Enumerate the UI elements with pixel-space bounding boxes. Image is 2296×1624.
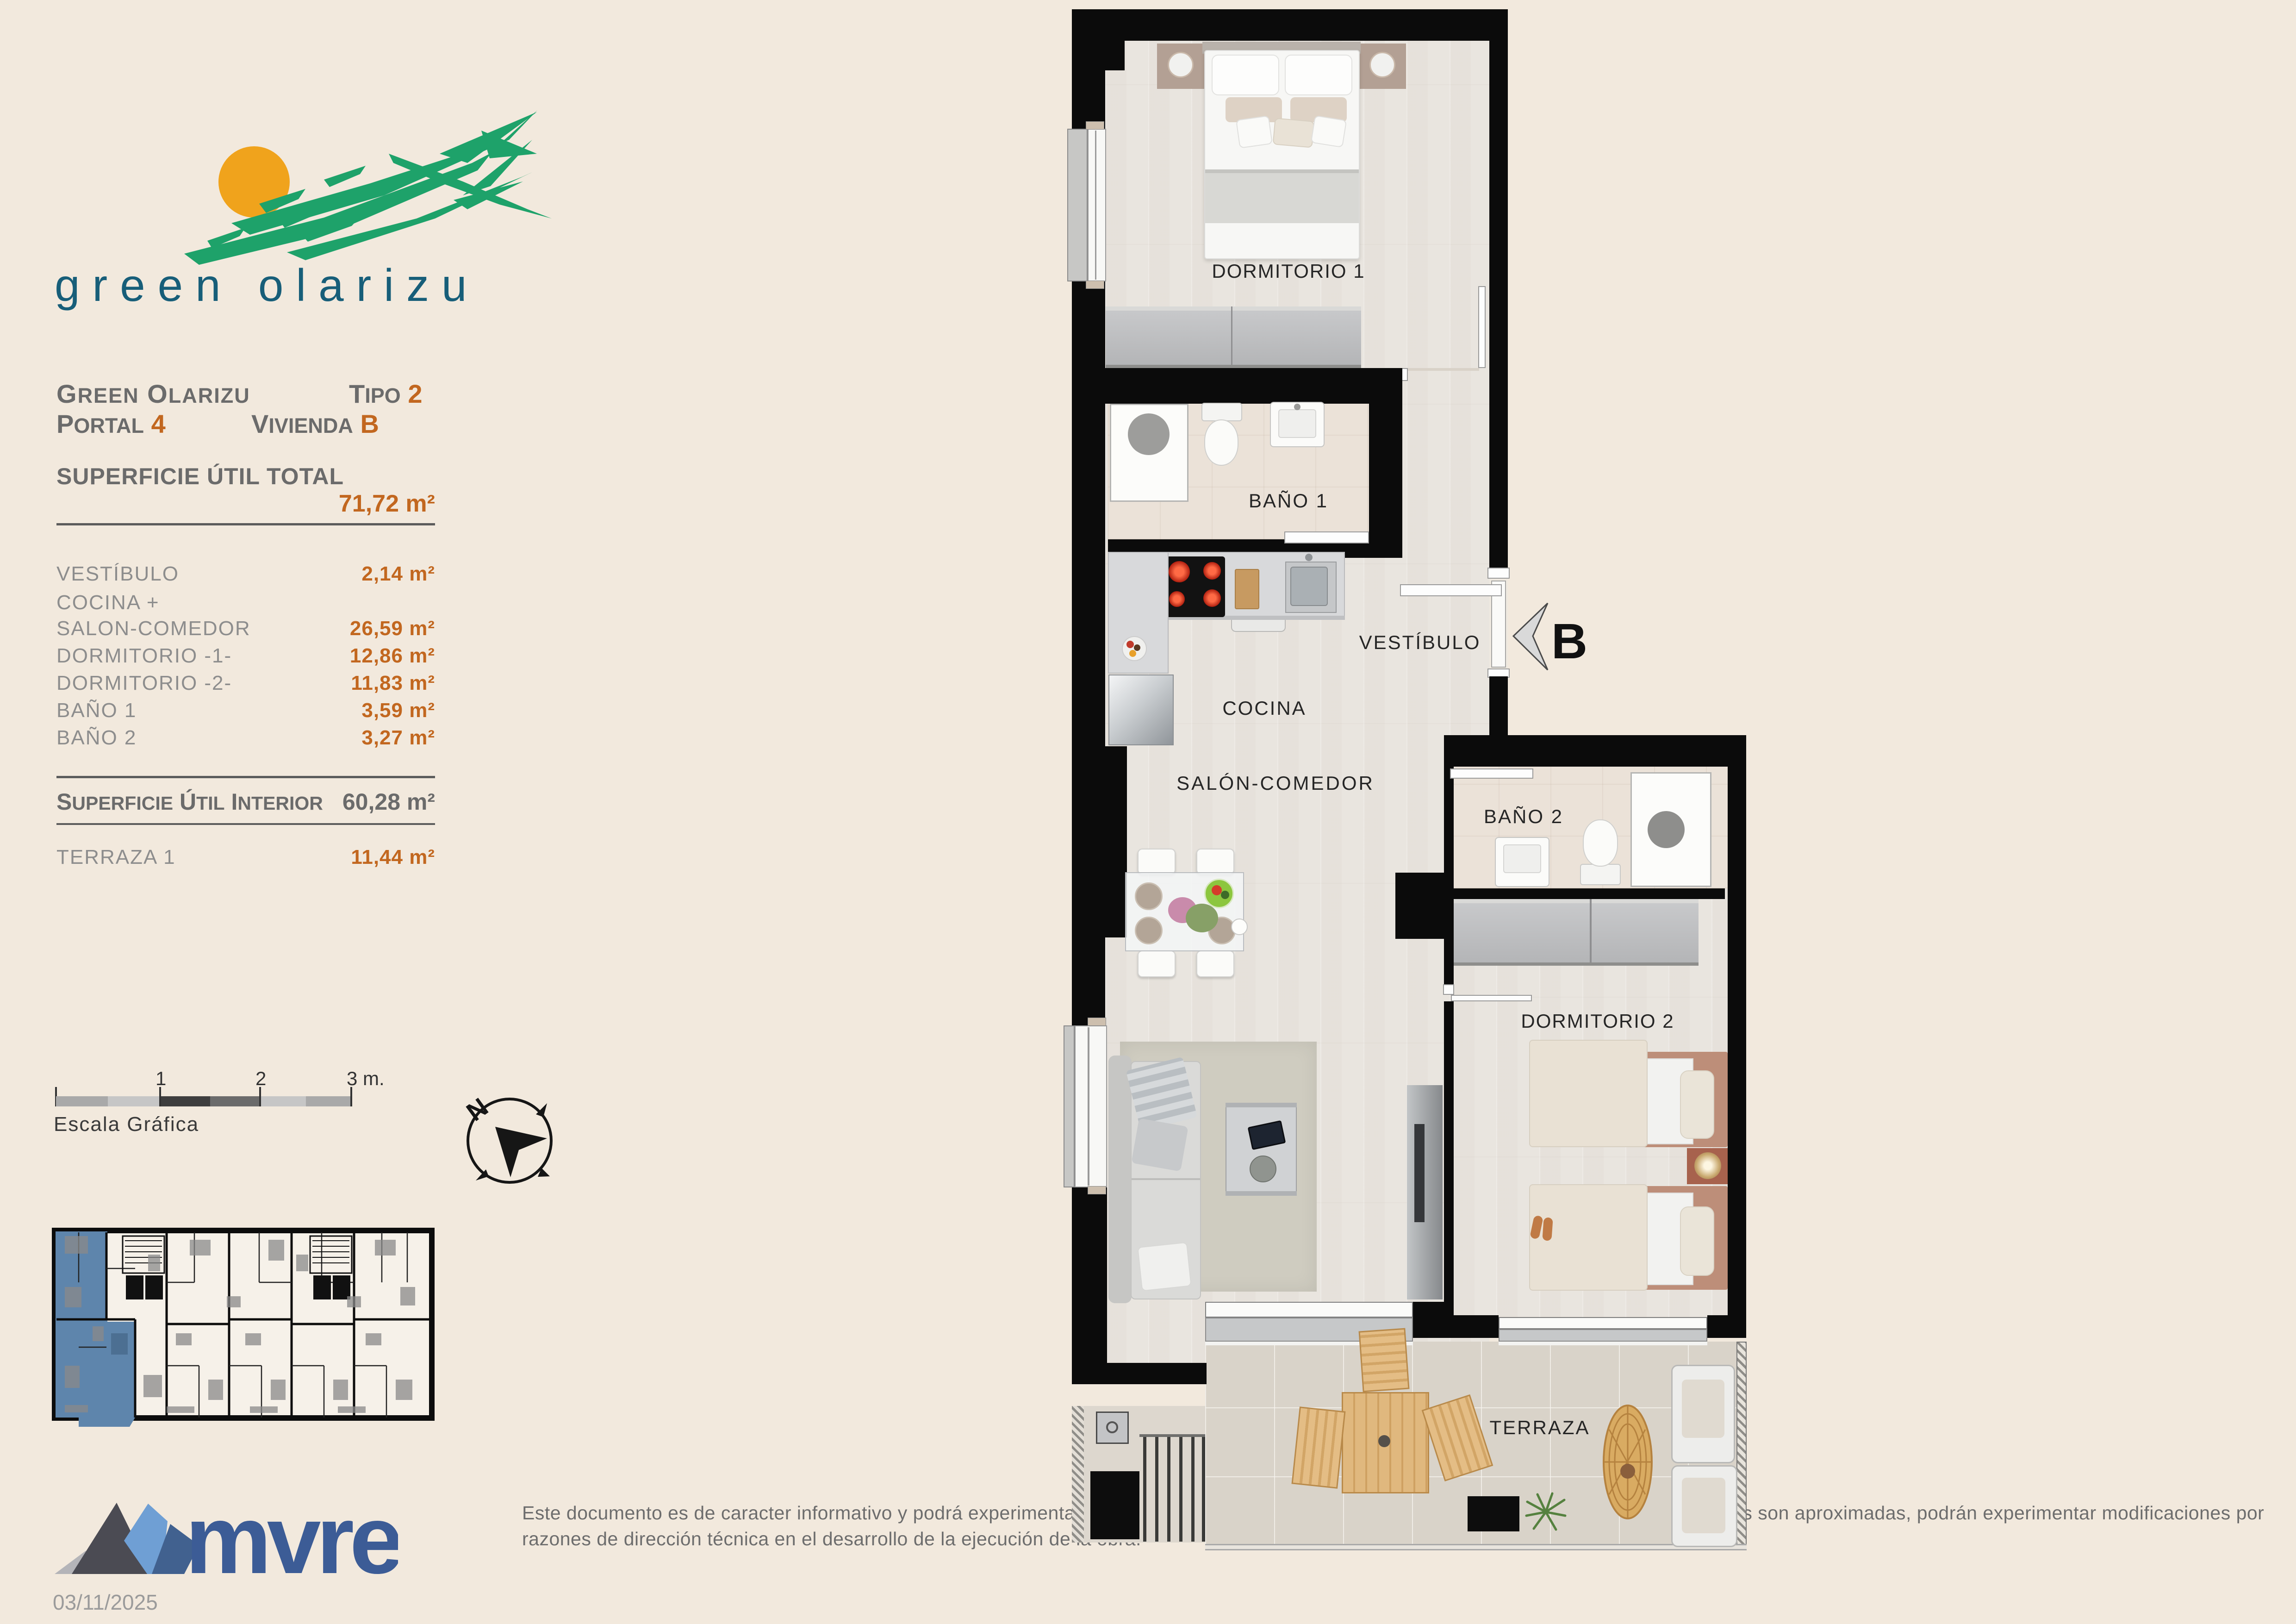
svg-text:mvre: mvre [185,1491,398,1583]
svg-text:N: N [463,1094,493,1127]
